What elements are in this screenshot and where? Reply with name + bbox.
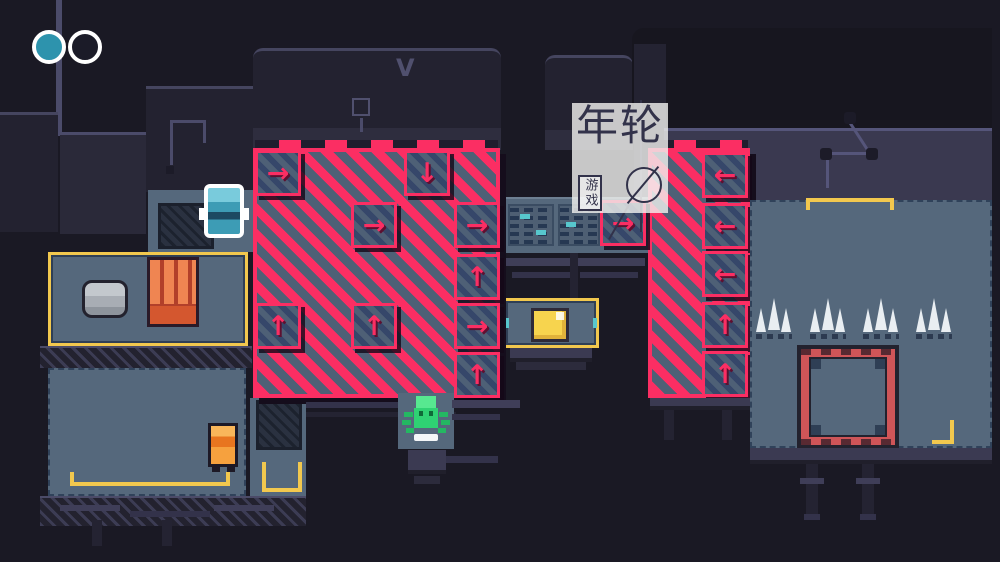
door-marker: [806, 198, 894, 202]
life-orb-empty-icon: [68, 30, 102, 64]
spike-cluster[interactable]: [916, 298, 952, 342]
robot-foot: [227, 466, 235, 472]
arrow-up-icon: ↑: [714, 312, 737, 339]
spike-icon: [928, 298, 940, 330]
pipe-bar: [452, 400, 520, 408]
arrow-left-icon: ←: [714, 162, 737, 189]
frame-notch: [811, 425, 821, 435]
robot-foot: [212, 466, 220, 472]
wall-divider-band: [40, 346, 252, 368]
butter-glint: [556, 312, 564, 320]
creature-leg: [402, 420, 411, 425]
arrow-right-icon: →: [466, 313, 489, 340]
room-right-ledge: [750, 448, 992, 464]
vent-light: [566, 222, 576, 227]
pipe-decor: [203, 123, 206, 143]
frame-notch: [875, 359, 885, 369]
creature-shadow-dash: [414, 434, 438, 441]
conveyor-tile-up[interactable]: ↑: [454, 352, 500, 398]
spike-icon: [888, 308, 898, 332]
arrow-down-icon: ↓: [416, 160, 439, 187]
constellation-node: [866, 148, 878, 160]
spike-icon: [875, 298, 887, 330]
door-marker-end: [70, 472, 74, 486]
pipe-bar: [512, 272, 570, 278]
orange-robot[interactable]: [208, 423, 238, 467]
watermark-logo-text: 年轮: [572, 103, 668, 149]
support-bracket: [800, 478, 824, 484]
spike-base: [916, 334, 952, 339]
watermark-badge: 游戏: [578, 175, 602, 211]
creature-leg: [404, 412, 413, 417]
arrow-left-icon: ←: [714, 213, 737, 240]
spike-cluster[interactable]: [863, 298, 899, 342]
wall-panel-stem: [360, 118, 363, 132]
player-character[interactable]: [204, 184, 244, 238]
conveyor-tile-up[interactable]: ↑: [702, 302, 748, 348]
pedestal-base-low: [516, 362, 586, 370]
zone-ledge: [650, 398, 750, 410]
arrow-up-icon: ↑: [267, 313, 290, 340]
spike-icon: [822, 298, 834, 330]
spike-base: [863, 334, 899, 339]
grate-tile: [256, 400, 302, 450]
conveyor-tile-up[interactable]: ↑: [702, 351, 748, 397]
creature-leg: [441, 420, 450, 425]
wall-top-right-dark: [632, 28, 992, 132]
pedestal-light: [593, 318, 597, 328]
pipe-node: [166, 166, 174, 174]
spike-icon: [810, 308, 820, 332]
hud-life-orbs: [32, 30, 102, 64]
conveyor-tile-left[interactable]: ←: [702, 203, 748, 249]
pipe-bar: [60, 505, 120, 511]
creature-body: [414, 408, 438, 428]
door-marker: [262, 488, 302, 492]
support-foot: [860, 514, 876, 520]
door-marker-end: [806, 198, 810, 210]
pedestal-lower: [408, 450, 446, 474]
spike-base: [810, 334, 846, 339]
spike-cluster[interactable]: [756, 298, 792, 342]
wall-top-left: [0, 112, 58, 232]
conveyor-tile-up[interactable]: ↑: [351, 303, 397, 349]
pipe-decor: [170, 120, 206, 123]
conveyor-tile-up[interactable]: ↑: [454, 254, 500, 300]
support-leg: [92, 520, 102, 546]
creature-leg: [439, 412, 448, 417]
orange-door[interactable]: [147, 257, 199, 327]
platform-frame[interactable]: [797, 345, 899, 449]
constellation-node: [820, 148, 832, 160]
vent-light: [536, 230, 546, 235]
support-leg: [722, 410, 732, 440]
arrow-left-icon: ←: [714, 261, 737, 288]
spike-icon: [756, 308, 766, 332]
pipe-bar: [130, 511, 210, 517]
conveyor-tile-down[interactable]: ↓: [404, 150, 450, 196]
player-side-nub: [243, 208, 249, 220]
frame-dashes: [801, 349, 895, 355]
wall-left-window: [60, 132, 146, 234]
creature-eye: [419, 411, 423, 416]
pedestal-base: [510, 348, 592, 362]
wall-left-pipes: [146, 86, 258, 192]
player-side-nub: [199, 208, 205, 220]
spike-icon: [768, 298, 780, 330]
frame-dashes: [801, 439, 895, 445]
frame-notch: [875, 425, 885, 435]
spike-cluster[interactable]: [810, 298, 846, 342]
pipe-bar: [452, 414, 500, 420]
arrow-right-icon: →: [363, 212, 386, 239]
support-leg: [806, 464, 818, 516]
pipe-stem: [570, 253, 578, 299]
support-leg: [664, 410, 674, 440]
creature-leg: [438, 428, 446, 433]
door-lower-panel: [150, 304, 196, 324]
watermark: 年轮 游戏: [572, 103, 668, 213]
arrow-up-icon: ↑: [363, 313, 386, 340]
conveyor-tile-right[interactable]: →: [454, 303, 500, 349]
arrow-right-icon: →: [466, 212, 489, 239]
conveyor-tile-up[interactable]: ↑: [255, 303, 301, 349]
vent-emblem-icon: V: [396, 54, 415, 82]
spike-icon: [781, 308, 791, 332]
door-marker: [70, 482, 230, 486]
pipe-decor: [170, 120, 173, 165]
pedestal-light: [505, 318, 509, 328]
vent-light: [520, 214, 530, 219]
constellation-node: [844, 112, 856, 124]
pipe-bar: [214, 505, 274, 511]
door-marker-end: [226, 472, 230, 486]
creature-eye: [429, 411, 433, 416]
frame-notch: [811, 359, 821, 369]
arrow-up-icon: ↑: [714, 361, 737, 388]
support-leg: [862, 464, 874, 516]
pipe-bar: [446, 456, 498, 463]
pedestal-foot: [414, 476, 440, 484]
spike-icon: [835, 308, 845, 332]
spike-icon: [916, 308, 926, 332]
conveyor-tile-left[interactable]: ←: [702, 251, 748, 297]
life-orb-filled-icon: [32, 30, 66, 64]
conveyor-tile-left[interactable]: ←: [702, 152, 748, 198]
arrow-up-icon: ↑: [466, 264, 489, 291]
vent-panel: [508, 204, 554, 246]
pipe-bar: [580, 272, 638, 278]
door-marker-end: [890, 198, 894, 210]
spike-icon: [941, 308, 951, 332]
support-leg: [162, 520, 172, 546]
arrow-up-icon: ↑: [466, 362, 489, 389]
corner-marker: [950, 420, 954, 444]
conveyor-tile-right[interactable]: →: [255, 150, 301, 196]
arrow-right-icon: →: [267, 160, 290, 187]
green-creature[interactable]: [402, 394, 450, 444]
conveyor-tile-right[interactable]: →: [454, 202, 500, 248]
rock-boulder[interactable]: [82, 280, 128, 318]
spike-icon: [863, 308, 873, 332]
creature-leg: [406, 428, 414, 433]
door-slats: [150, 260, 196, 307]
support-foot: [804, 514, 820, 520]
constellation-stem: [826, 158, 829, 188]
support-bracket: [856, 478, 880, 484]
spike-base: [756, 334, 792, 339]
conveyor-tile-right[interactable]: →: [351, 202, 397, 248]
wall-panel-icon: [352, 98, 370, 116]
